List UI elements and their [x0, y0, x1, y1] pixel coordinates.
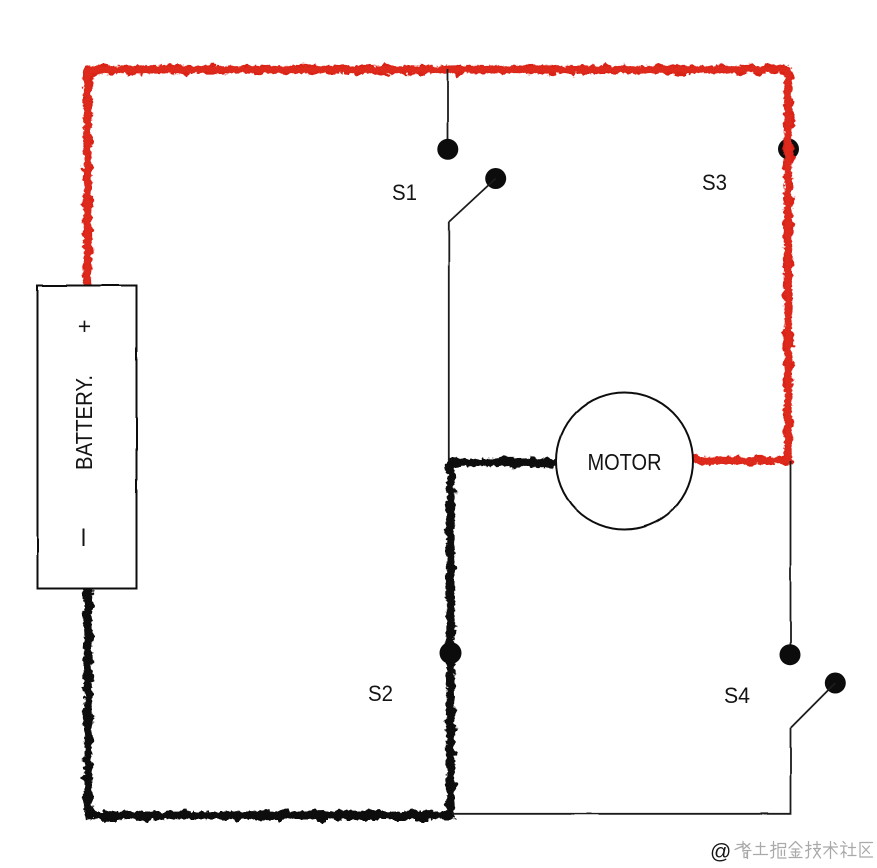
- svg-text:S2: S2: [368, 681, 393, 706]
- svg-text:S1: S1: [392, 180, 417, 205]
- svg-text:+: +: [78, 313, 91, 339]
- svg-text:BATTERY.: BATTERY.: [71, 375, 97, 470]
- svg-text:@: @: [710, 841, 731, 864]
- svg-text:S4: S4: [724, 683, 750, 708]
- svg-text:MOTOR: MOTOR: [588, 449, 662, 475]
- svg-text:S3: S3: [702, 170, 727, 195]
